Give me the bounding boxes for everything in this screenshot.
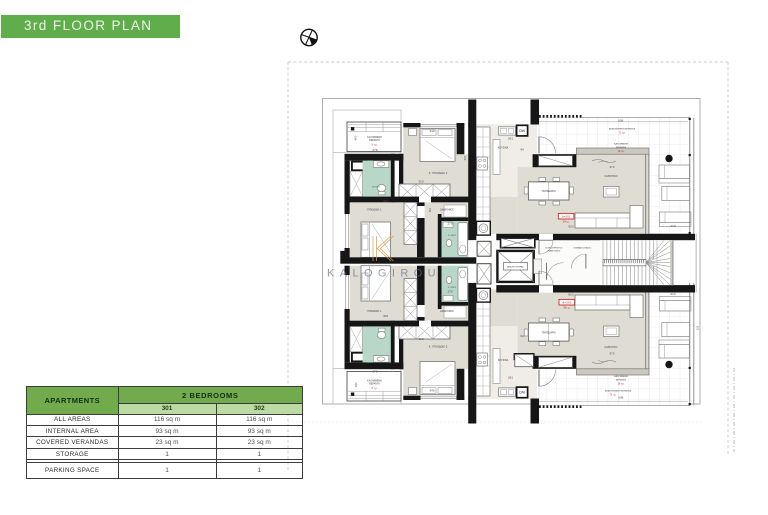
svg-text:ΚΑΛΥΜΜΕΝΗ: ΚΑΛΥΜΜΕΝΗ (367, 380, 382, 383)
svg-text:ΛΟΥΤΡΟ: ΛΟΥΤΡΟ (372, 187, 381, 189)
svg-text:Δ=302: Δ=302 (562, 301, 571, 305)
svg-text:Κ. ΥΠΝΟΔΩΜ. 2: Κ. ΥΠΝΟΔΩΜ. 2 (429, 172, 448, 175)
svg-text:18 τ.μ.: 18 τ.μ. (618, 150, 625, 153)
svg-text:373: 373 (609, 165, 614, 169)
svg-text:ΒΕΡΑΝΤΑ: ΒΕΡΑΝΤΑ (369, 139, 380, 142)
svg-text:9 τ.μ.: 9 τ.μ. (372, 387, 378, 390)
svg-text:ΚΑΛΥΜΜΕΝΗ: ΚΑΛΥΜΜΕΝΗ (614, 375, 628, 378)
svg-text:ΚΑΛΥΜΜΕΝΗ: ΚΑΛΥΜΜΕΝΗ (614, 143, 628, 146)
svg-text:Λ. ΟΙΚΟΣ: Λ. ΟΙΚΟΣ (448, 235, 457, 237)
svg-text:99τ.μ.: 99τ.μ. (563, 306, 570, 310)
svg-text:71 τ.μ.: 71 τ.μ. (619, 131, 626, 134)
svg-text:ΥΠΝΟΔΩΜ. 1: ΥΠΝΟΔΩΜ. 1 (367, 310, 383, 313)
svg-text:ΔΙΑΔΡΟΜΟΣ: ΔΙΑΔΡΟΜΟΣ (440, 209, 454, 212)
svg-text:606: 606 (618, 395, 623, 399)
svg-text:340: 340 (429, 129, 434, 133)
svg-text:270: 270 (447, 222, 452, 226)
svg-text:210: 210 (670, 224, 675, 228)
svg-text:310: 310 (418, 180, 423, 184)
svg-text:ΥΠΝΟΔΩΜ. 1: ΥΠΝΟΔΩΜ. 1 (367, 209, 383, 212)
svg-text:813: 813 (568, 225, 573, 229)
svg-text:404: 404 (383, 199, 388, 203)
svg-text:310: 310 (418, 337, 423, 341)
svg-text:ΒΕΡΑΝΤΑ: ΒΕΡΑΝΤΑ (616, 378, 626, 381)
svg-text:Κ. ΥΠΝΟΔΩΜ. 2: Κ. ΥΠΝΟΔΩΜ. 2 (429, 346, 448, 349)
svg-text:18 τ.μ.: 18 τ.μ. (618, 383, 625, 386)
svg-text:ΔΙΑΔΡΟΜΟΣ: ΔΙΑΔΡΟΜΟΣ (440, 310, 454, 313)
svg-text:ΑΚΑΛΥΜΜΕΝΗ ΒΕΡΑΝΤΑ: ΑΚΑΛΥΜΜΕΝΗ ΒΕΡΑΝΤΑ (609, 127, 635, 130)
svg-text:278: 278 (372, 369, 377, 373)
svg-text:122: 122 (696, 325, 700, 330)
svg-text:261: 261 (508, 137, 513, 141)
svg-text:99τ.μ.: 99τ.μ. (563, 220, 570, 224)
svg-text:373: 373 (609, 351, 614, 355)
svg-text:278: 278 (372, 148, 377, 152)
svg-text:ΚΟΥΖΙΝΑ: ΚΟΥΖΙΝΑ (498, 146, 509, 149)
svg-text:ΚΑΘΙΣΤΙΚΟ: ΚΑΘΙΣΤΙΚΟ (605, 346, 618, 349)
svg-text:94: 94 (520, 334, 524, 338)
svg-text:210: 210 (670, 292, 675, 296)
svg-text:ΚΑΘΙΣΤΙΚΟ: ΚΑΘΙΣΤΙΚΟ (605, 175, 618, 178)
svg-text:ΚΑΛΥΜΜΕΝΗ: ΚΑΛΥΜΜΕΝΗ (367, 136, 382, 139)
svg-text:340: 340 (429, 389, 434, 393)
svg-text:110: 110 (428, 207, 432, 212)
svg-text:KALOGIROU: KALOGIROU (327, 268, 441, 280)
svg-text:367: 367 (463, 155, 467, 160)
svg-text:ΑΚΑΛΥΜΜΕΝΗ ΒΕΡΑΝΤΑ: ΑΚΑΛΥΜΜΕΝΗ ΒΕΡΑΝΤΑ (605, 390, 631, 393)
svg-text:71 τ.μ.: 71 τ.μ. (610, 394, 617, 397)
svg-text:ΤΡΑΠΕΖΑΡΙΑ: ΤΡΑΠΕΖΑΡΙΑ (542, 332, 557, 335)
svg-text:ΚΟΙΝΟΧΡΗΣΤΟΣ: ΚΟΙΝΟΧΡΗΣΤΟΣ (545, 247, 563, 249)
svg-text:ΑΝΕΛΚΥΣΤΗΡΑΣ: ΑΝΕΛΚΥΣΤΗΡΑΣ (507, 266, 524, 269)
svg-text:ΔΙΑΔΡΟΜΟΣ: ΔΙΑΔΡΟΜΟΣ (547, 250, 561, 253)
svg-text:ΒΕΡΑΝΤΑ: ΒΕΡΑΝΤΑ (369, 383, 380, 386)
svg-text:ΚΟΥΖΙΝΑ: ΚΟΥΖΙΝΑ (498, 359, 509, 362)
svg-text:Δ=301: Δ=301 (562, 215, 571, 219)
svg-text:400: 400 (354, 135, 358, 140)
svg-text:ΚΛΙΜΑΚΟΣΤΑΣΙΟ: ΚΛΙΜΑΚΟΣΤΑΣΙΟ (574, 246, 592, 249)
svg-text:DW: DW (519, 129, 525, 133)
svg-text:261: 261 (508, 376, 513, 380)
svg-text:180: 180 (354, 382, 358, 387)
svg-text:ΒΕΡΑΝΤΑ: ΒΕΡΑΝΤΑ (616, 146, 626, 149)
svg-text:409: 409 (383, 314, 388, 318)
svg-text:9 τ.μ.: 9 τ.μ. (372, 144, 378, 147)
svg-text:270: 270 (447, 289, 452, 293)
svg-text:94: 94 (520, 148, 524, 152)
svg-text:606: 606 (618, 118, 623, 122)
svg-text:813: 813 (568, 292, 573, 296)
svg-text:ΤΡΑΠΕΖΑΡΙΑ: ΤΡΑΠΕΖΑΡΙΑ (542, 190, 557, 193)
